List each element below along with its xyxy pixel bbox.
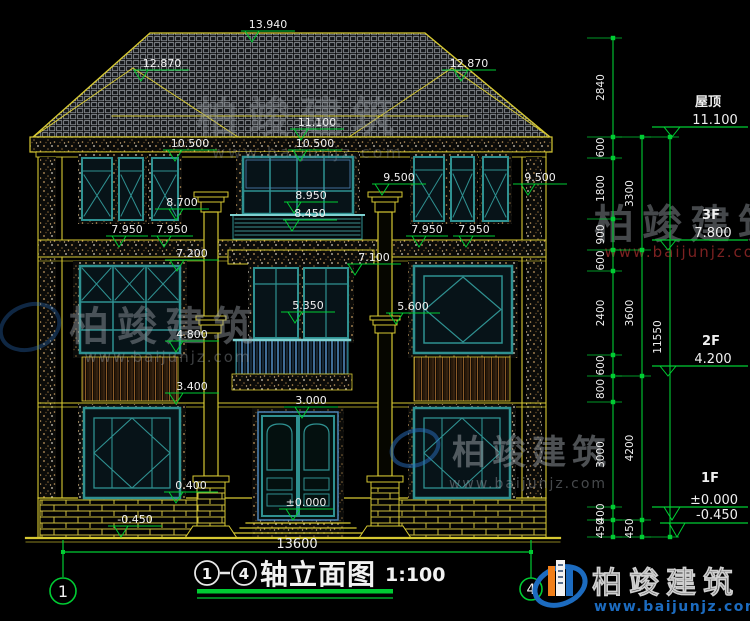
svg-text:7.100: 7.100 xyxy=(358,251,390,264)
dimension-segment-value: 450 xyxy=(595,518,607,538)
level-label: 屋顶11.100 xyxy=(652,95,748,137)
svg-text:12.870: 12.870 xyxy=(450,57,489,70)
level-name: 屋顶 xyxy=(695,95,721,110)
watermark-left: 柏竣建筑 www.baijunjz.com xyxy=(0,296,261,366)
window xyxy=(152,158,178,220)
svg-text:8.700: 8.700 xyxy=(166,196,198,209)
brand-logo: 柏竣建筑 www.baijunjz.com xyxy=(529,560,750,615)
level-name: 2F xyxy=(702,334,720,349)
axis-bubble-1: 1 xyxy=(50,540,76,604)
brick-base-right xyxy=(396,500,546,538)
corner-pilaster-left xyxy=(40,157,56,498)
svg-text:1: 1 xyxy=(58,582,68,601)
level-elevation: 11.100 xyxy=(692,113,738,128)
svg-text:9.500: 9.500 xyxy=(383,171,415,184)
title-axis-from: 1 xyxy=(202,565,212,583)
bottom-dimension-value: 13600 xyxy=(276,537,317,552)
svg-text:5.600: 5.600 xyxy=(397,300,429,313)
level-label: -0.450 xyxy=(660,508,748,537)
level-elevation: 7.800 xyxy=(694,226,731,241)
svg-text:7.200: 7.200 xyxy=(176,247,208,260)
title-axis-to: 4 xyxy=(239,565,249,583)
drawing-canvas: 柏竣建筑 www.baijunjz.com 柏竣建筑 www.baijunjz.… xyxy=(0,0,750,621)
dimension-column: 11550 xyxy=(644,135,679,539)
window xyxy=(82,158,112,220)
wood-band-right xyxy=(414,357,510,401)
logo-url: www.baijunjz.com xyxy=(594,599,750,615)
svg-text:5.350: 5.350 xyxy=(292,299,324,312)
svg-text:12.870: 12.870 xyxy=(143,57,182,70)
level-name: 3F xyxy=(702,208,720,223)
window xyxy=(119,158,143,220)
svg-text:www.baijunjz.com: www.baijunjz.com xyxy=(449,476,607,492)
dimension-segment-value: 3600 xyxy=(624,300,636,327)
svg-text:9.500: 9.500 xyxy=(524,171,556,184)
porch-eave-2f xyxy=(228,250,374,264)
svg-text:8.450: 8.450 xyxy=(294,207,326,220)
svg-text:7.950: 7.950 xyxy=(111,223,143,236)
windows-3f-left xyxy=(78,154,182,224)
window xyxy=(451,157,474,221)
dimension-segment-value: 4200 xyxy=(624,435,636,462)
svg-text:±0.000: ±0.000 xyxy=(286,496,327,509)
svg-text:www.baijunjz.com: www.baijunjz.com xyxy=(604,243,750,261)
svg-text:8.950: 8.950 xyxy=(295,189,327,202)
drawing-title: 1 4 轴立面图 1:100 xyxy=(195,558,445,598)
dimension-segment-value: 600 xyxy=(595,137,607,157)
svg-text:-0.450: -0.450 xyxy=(117,513,152,526)
windows-3f-right xyxy=(410,153,512,224)
svg-text:0.400: 0.400 xyxy=(175,479,207,492)
svg-text:13.940: 13.940 xyxy=(249,18,288,31)
level-labels-layer: 屋顶11.1003F7.8002F4.2001F±0.000-0.450 xyxy=(652,95,748,537)
svg-text:10.500: 10.500 xyxy=(171,137,210,150)
dimension-segment-value: 800 xyxy=(595,379,607,399)
dimension-segment-value: 450 xyxy=(624,518,636,538)
svg-text:柏竣建筑: 柏竣建筑 xyxy=(452,433,612,473)
window xyxy=(414,157,444,221)
logo-name: 柏竣建筑 xyxy=(592,566,740,601)
dimension-segment-value: 1800 xyxy=(595,175,607,202)
dimension-segment-value: 900 xyxy=(595,224,607,244)
dimension-segment-value: 3300 xyxy=(624,180,636,207)
entrance-door xyxy=(252,408,344,538)
svg-text:柏竣建筑: 柏竣建筑 xyxy=(594,202,750,248)
window xyxy=(483,157,508,221)
dimension-segment-value: 11550 xyxy=(652,320,664,353)
title-underline xyxy=(197,589,393,594)
svg-text:7.950: 7.950 xyxy=(458,223,490,236)
cad-elevation-drawing: 柏竣建筑 www.baijunjz.com 柏竣建筑 www.baijunjz.… xyxy=(0,0,750,621)
dimension-column: 330036004200450 xyxy=(616,135,651,539)
svg-text:7.950: 7.950 xyxy=(411,223,443,236)
svg-text:柏竣建筑: 柏竣建筑 xyxy=(69,304,261,350)
level-elevation: -0.450 xyxy=(696,508,738,523)
title-text: 轴立面图 xyxy=(260,558,376,591)
svg-text:3.400: 3.400 xyxy=(176,380,208,393)
level-elevation: 4.200 xyxy=(694,352,731,367)
dimension-segment-value: 2840 xyxy=(595,74,607,101)
window-1f-left xyxy=(78,404,186,500)
title-scale: 1:100 xyxy=(385,564,445,586)
dimension-segment-value: 2400 xyxy=(595,300,607,327)
level-label: 2F4.200 xyxy=(652,334,748,376)
axis-bubble-4: 4 xyxy=(520,540,542,600)
dimension-segment-value: 600 xyxy=(595,355,607,375)
window-2f-right xyxy=(408,261,518,401)
svg-text:7.950: 7.950 xyxy=(156,223,188,236)
dimension-segment-value: 3000 xyxy=(595,441,607,468)
dimension-segment-value: 600 xyxy=(595,250,607,270)
svg-text:www.baijunjz.com: www.baijunjz.com xyxy=(84,348,251,366)
svg-text:11.100: 11.100 xyxy=(298,116,337,129)
svg-text:10.500: 10.500 xyxy=(296,137,335,150)
level-name: 1F xyxy=(701,471,719,486)
dimension-columns-layer: 2840600180090060024006008003000400450330… xyxy=(587,36,679,539)
svg-text:4.800: 4.800 xyxy=(176,328,208,341)
svg-text:3.000: 3.000 xyxy=(295,394,327,407)
level-elevation: ±0.000 xyxy=(690,493,738,508)
